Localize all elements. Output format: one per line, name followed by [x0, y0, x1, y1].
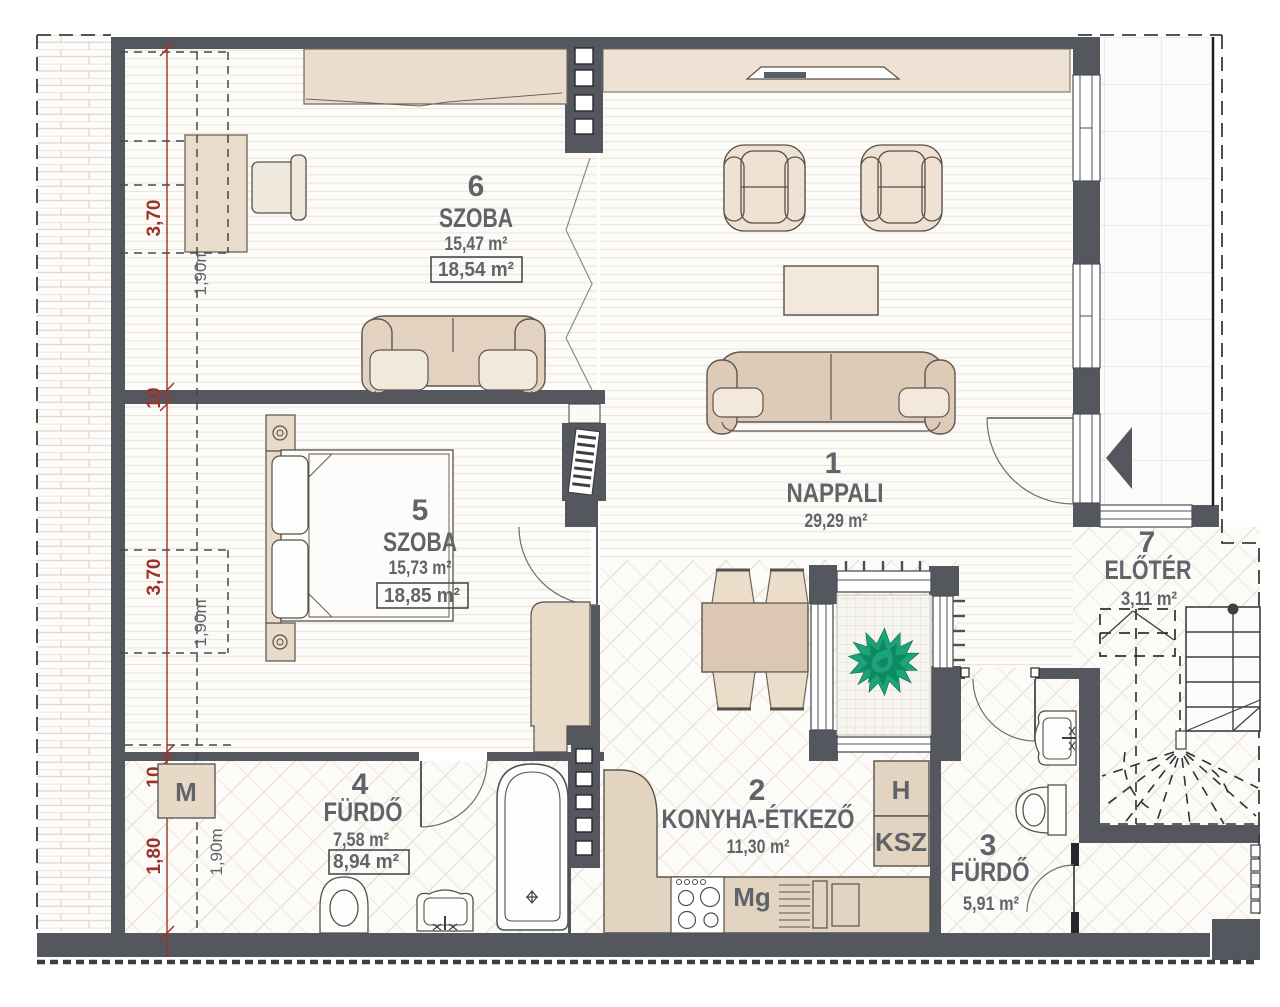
svg-text:NAPPALI: NAPPALI [787, 478, 884, 508]
svg-text:18,85 m²: 18,85 m² [384, 585, 460, 607]
svg-text:7,58 m²: 7,58 m² [333, 830, 389, 851]
svg-text:ELŐTÉR: ELŐTÉR [1105, 554, 1192, 585]
svg-text:KSZ: KSZ [875, 827, 927, 857]
svg-text:18,54 m²: 18,54 m² [438, 259, 514, 281]
svg-text:1,90m: 1,90m [191, 248, 210, 295]
svg-text:3,11 m²: 3,11 m² [1121, 589, 1177, 610]
svg-text:1: 1 [825, 447, 842, 480]
svg-text:M: M [175, 777, 197, 807]
svg-text:5,91 m²: 5,91 m² [963, 894, 1019, 915]
svg-text:15,47 m²: 15,47 m² [445, 234, 508, 255]
svg-text:8,94 m²: 8,94 m² [333, 851, 399, 873]
svg-text:5: 5 [412, 494, 429, 527]
svg-text:11,30 m²: 11,30 m² [727, 837, 790, 858]
svg-text:1,90m: 1,90m [207, 828, 226, 875]
svg-text:15,73 m²: 15,73 m² [389, 558, 452, 579]
svg-text:FÜRDŐ: FÜRDŐ [951, 856, 1030, 887]
svg-text:KONYHA-ÉTKEZŐ: KONYHA-ÉTKEZŐ [662, 803, 855, 834]
svg-text:SZOBA: SZOBA [439, 203, 513, 233]
svg-text:10: 10 [144, 387, 165, 408]
svg-text:2: 2 [749, 774, 766, 807]
svg-text:3,70: 3,70 [144, 200, 165, 237]
svg-text:SZOBA: SZOBA [383, 527, 457, 557]
svg-text:29,29 m²: 29,29 m² [805, 511, 868, 532]
svg-text:1,80: 1,80 [144, 838, 165, 875]
svg-text:Mg: Mg [733, 882, 771, 912]
svg-text:3,70: 3,70 [144, 559, 165, 596]
svg-text:H: H [892, 775, 911, 805]
svg-text:FÜRDŐ: FÜRDŐ [324, 796, 403, 827]
svg-text:6: 6 [468, 170, 485, 203]
svg-text:1,90m: 1,90m [191, 599, 210, 646]
